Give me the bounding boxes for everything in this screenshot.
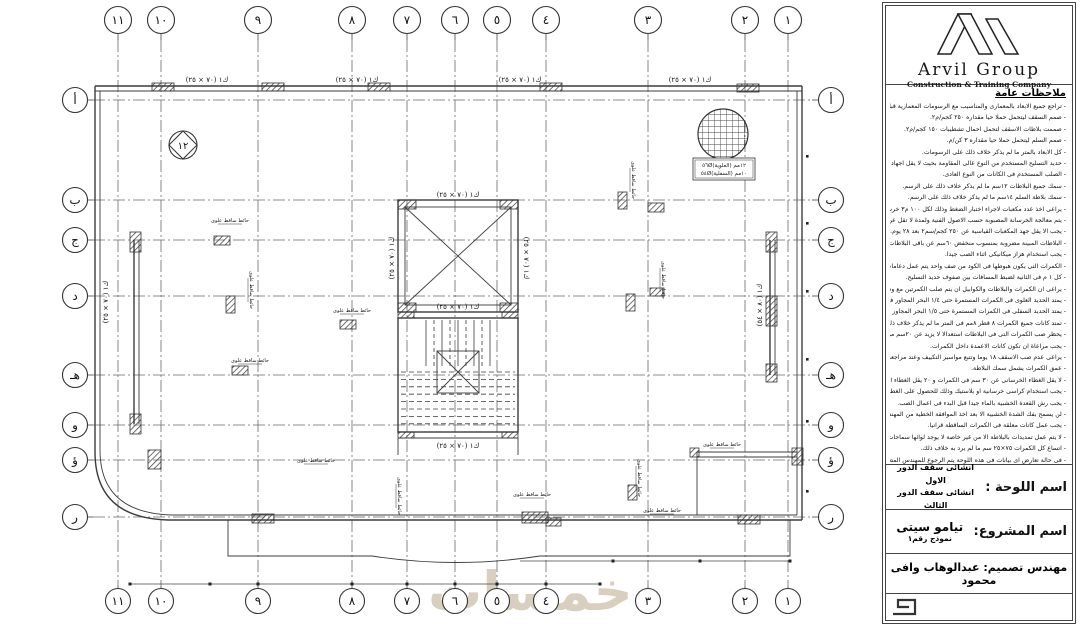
sheet-name-line2: انشائى سقف الدور الثالث	[886, 487, 985, 513]
arvil-logo-icon	[886, 6, 1073, 58]
note-line: - لا يتم عمل تمديدات بالبلاطة الا من غير…	[890, 432, 1066, 443]
grid-bubble-label: هـ	[69, 368, 80, 382]
annotation: حائط ساقط علوى	[630, 161, 636, 199]
project-name-label: اسم المشروع:	[974, 524, 1073, 539]
notes-list: - تراجع جميع الابعاد بالمعمارى والمناسيب…	[890, 101, 1066, 465]
column-hatch	[766, 364, 777, 382]
column-hatch	[502, 432, 518, 438]
beam-label: (٧٠ × ٢٥) ك١	[522, 237, 530, 280]
beam-label: (٧٠ × ٢٥) ك١	[669, 76, 712, 84]
grid-bubble-label: ٣	[645, 13, 652, 27]
grid-bubble-label: ر	[71, 510, 78, 525]
building-walls	[95, 86, 802, 563]
column-hatch	[398, 200, 416, 209]
grid-bubble-label: ب	[69, 193, 80, 207]
note-line: - يجب الا يقل جهد المكعبات القياسية عن ٢…	[890, 226, 1066, 237]
grid-bubble-label: د	[828, 289, 833, 303]
engineer-name: عبدالوهاب وافى محمود	[891, 561, 997, 587]
grid-bubble-label: ٤	[543, 13, 549, 27]
grid-bubble-label: ٥	[494, 13, 500, 27]
grid-bubble-label: ٦	[452, 594, 458, 608]
note-line: - كل ١ م فى الثانية لضبط المسافات بين صف…	[890, 272, 1066, 283]
annotation-label: حائط ساقط علوى	[513, 492, 551, 498]
grid-bubble-label: و	[71, 418, 78, 433]
beam-label: (٧٠ × ٢٥) ك١	[499, 76, 542, 84]
note-line: - الصلب المستخدم فى الكانات من النوع الع…	[890, 169, 1066, 180]
grid-bubble-label: ٧	[404, 594, 411, 608]
annotation-label: حائط ساقط علوى	[297, 458, 335, 464]
grid-bubble-label: ٤	[543, 594, 549, 608]
annotation-label: حائط ساقط علوى	[211, 218, 249, 224]
grid-bubble-label: ٧	[404, 13, 411, 27]
note-line: - لن يسمح بفك الشدة الخشبية الا بعد اخذ …	[890, 409, 1066, 420]
note-line: - صممت بلاطات الاسقف لتحمل احمال تشطيبات…	[890, 124, 1066, 135]
grid-bubble-label: ٩	[255, 13, 261, 27]
sheet-name-row: اسم اللوحة : انشائى سقف الدور الاول انشا…	[886, 465, 1072, 510]
grid-bubble-label: ١	[785, 13, 791, 27]
beam-label: (٧٠ × ٢٥) ك١	[388, 236, 396, 279]
company-logo-box: Arvil Group Construction & Training Comp…	[886, 6, 1072, 85]
project-name-row: اسم المشروع: تيامو سيتى نموذج رقم١	[886, 510, 1072, 554]
note-line: - حديد التسليح المستخدم من النوع عالى ال…	[890, 158, 1066, 169]
grid-bubble-label: ١١	[112, 594, 125, 608]
project-name: تيامو سيتى	[886, 520, 974, 534]
column-hatch	[130, 414, 141, 434]
engineer-label: مهندس تصميم:	[983, 561, 1067, 574]
column-hatch	[368, 83, 390, 91]
edge-tick	[806, 222, 809, 225]
sheet-name-line1: انشائى سقف الدور الاول	[886, 462, 985, 488]
dimension-tick	[599, 583, 602, 586]
column-hatch	[148, 450, 161, 469]
note-line: - البلاطات المبينة مضروبة بمنسوب منخفض ٦…	[890, 238, 1066, 249]
column-hatch	[262, 83, 284, 91]
column-hatch	[540, 83, 562, 91]
dimension-tick	[612, 560, 615, 563]
beam-label: (٧٠ × ٢٥) ك١	[186, 76, 229, 84]
wall-annotations: حائط ساقط علوىحائط ساقط علوىحائط ساقط عل…	[211, 161, 741, 515]
note-line: - يتم معالجة الخرسانة المصبوبة حسب الاصو…	[890, 215, 1066, 226]
note-line: - عمق الكمرات يشمل سمك البلاطة.	[890, 363, 1066, 374]
note-line: - يمتد الحديد السفلى فى الكمرات المستمرة…	[890, 306, 1066, 317]
note-line: - تراجع جميع الابعاد بالمعمارى والمناسيب…	[890, 101, 1066, 112]
grid-bubble-label: ٢	[742, 13, 748, 27]
note-line: - سمك بلاطة السلم ١٤سم ما لم يذكر خلاف ذ…	[890, 192, 1066, 203]
annotation: حائط ساقط علوى	[636, 459, 642, 497]
grid-bubble-label: ؤ	[827, 453, 834, 468]
note-line: - الكمرات التى يكون هبوطها فى الكود من ص…	[890, 261, 1066, 272]
annotation: حائط ساقط علوى	[231, 358, 269, 364]
beam-label: (٧٠ × ٢٥) ك١	[437, 442, 480, 450]
grid-bubble-label: ١٠	[155, 13, 168, 27]
column-hatch	[546, 518, 561, 526]
column-hatch	[690, 448, 699, 457]
dimension-tick	[545, 583, 548, 586]
column-hatch	[792, 448, 803, 465]
sheet-name-label: اسم اللوحة :	[985, 480, 1072, 495]
stamp-row	[886, 594, 1072, 620]
grid-bubble-label: ب	[825, 193, 836, 207]
edge-tick	[806, 155, 809, 158]
company-subtitle: Construction & Training Company	[886, 80, 1072, 89]
column-hatch	[522, 512, 548, 523]
grid-bubble-label: ٦	[452, 13, 458, 27]
dimension-tick	[351, 583, 354, 586]
annotation: حائط ساقط علوى	[513, 492, 551, 498]
edge-tick	[806, 358, 809, 361]
note-line: - يجب استخدام هزاز ميكانيكى اثناء الصب ج…	[890, 249, 1066, 260]
annotation: حائط ساقط علوى	[248, 271, 254, 309]
note-line: - صمم السقف ليتحمل حملا حيا مقداره ٢٥٠ ك…	[890, 112, 1066, 123]
general-notes: ملاحظات عامة - تراجع جميع الابعاد بالمعم…	[886, 85, 1072, 465]
grid-bubble-label: ج	[827, 233, 835, 247]
grid-bubble-label: ٥	[494, 594, 500, 608]
annotation-label: حائط ساقط علوى	[396, 477, 402, 515]
annotation: حائط ساقط علوى	[660, 261, 666, 299]
annotation-label: حائط ساقط علوى	[643, 508, 681, 514]
grid-bubble-label: ١٠	[155, 594, 168, 608]
annotation-label: حائط ساقط علوى	[333, 308, 371, 314]
project-model: نموذج رقم١	[886, 534, 974, 543]
note-line: - يجب رش القعدة الخشبية بالماء جيدا قبل …	[890, 398, 1066, 409]
column-hatch	[738, 515, 760, 524]
title-block-panel: Arvil Group Construction & Training Comp…	[882, 2, 1076, 624]
column-hatch	[500, 303, 518, 312]
grid-bubble-label: ج	[71, 233, 79, 247]
grid-bubble-label: ٢	[742, 594, 748, 608]
edge-tick	[806, 490, 809, 493]
annotation: حائط ساقط علوى	[333, 308, 371, 314]
dimension-tick	[454, 583, 457, 586]
edge-tick	[806, 290, 809, 293]
note-line: - صمم السلم ليتحمل حملا حيا مقداره ٣ كن/…	[890, 135, 1066, 146]
column-hatch	[502, 312, 518, 318]
note-line: - لا يقل الغطاء الخرسانى عن ٣٠ سم فى الك…	[890, 375, 1066, 386]
beam-label: (٧٠ × ٢٥) ك١	[437, 191, 480, 199]
annotation: حائط ساقط علوى	[396, 477, 402, 515]
grid-bubble-label: أ	[829, 92, 832, 107]
dimension-tick	[209, 583, 212, 586]
note-line: - اتساع كل الكمرات ٧٥×٢٥ سم ما لم يرد به…	[890, 443, 1066, 454]
grid-bubble-label: ؤ	[71, 453, 78, 468]
grid-bubble-label: ٨	[349, 13, 356, 27]
annotation-label: حائط ساقط علوى	[231, 358, 269, 364]
beam-label: (٧٠ × ٢٥) ك١	[102, 280, 110, 323]
section-marker-label: ١٢	[178, 141, 189, 152]
grid-bubble-label: و	[827, 418, 834, 433]
column-hatch	[766, 296, 777, 326]
annotation-label: حائط ساقط علوى	[703, 442, 741, 448]
note-line: - يراعى عدم صب الاسقف ١٨ يوما وتتبع مواس…	[890, 352, 1066, 363]
grid-bubble-label: أ	[73, 92, 76, 107]
grid-bubble-label: هـ	[825, 368, 836, 382]
note-line: - يراعى ان الكمرات والبلاطات والكوابيل ا…	[890, 284, 1066, 295]
note-line: - سمك جميع البلاطات ١٢سم ما لم يذكر خلاف…	[890, 181, 1066, 192]
rebar-note-bottom: ٥٤Ø١٠مم (السفلية)	[701, 170, 747, 177]
column-hatch	[214, 236, 230, 245]
drawing-sheet: خمسات	[0, 0, 1080, 624]
column-hatch	[618, 192, 627, 209]
beam-label: (٧٠ × ٢٥) ك١	[336, 76, 379, 84]
beam-label-side: (٨٠ × ٥٤) ك١	[756, 283, 764, 326]
note-line: - يراعى اخذ عدد مكعبات لاجراء اختبار الض…	[890, 204, 1066, 215]
notes-title: ملاحظات عامة	[890, 88, 1066, 99]
grid-bubble-label: د	[72, 289, 77, 303]
note-line: - يجب عمل كانات معلقة فى الكمرات الساقطة…	[890, 420, 1066, 431]
grid-bubble-label: ٨	[349, 594, 356, 608]
spiral-stamp-icon	[890, 597, 918, 617]
column-hatch	[152, 83, 174, 91]
column-hatch	[340, 320, 356, 329]
dimension-tick	[129, 583, 132, 586]
note-line: - يجب استخدام كراسى خرسانية او بلاستيك و…	[890, 386, 1066, 397]
annotation-label: حائط ساقط علوى	[660, 261, 666, 299]
column-hatch	[398, 312, 414, 318]
plan-markers: ١٢ ٥٦Ø١٢مم (العلوية) ٥٤Ø١٠مم (السفلية)	[169, 109, 755, 180]
column-hatch	[226, 296, 235, 313]
grid-bubble-label: ١	[785, 594, 791, 608]
dimension-tick	[496, 583, 499, 586]
engineer-row: مهندس تصميم: عبدالوهاب وافى محمود	[886, 554, 1072, 594]
stair-elevator-core	[398, 200, 518, 455]
grid-bubble-label: ١١	[112, 13, 125, 27]
column-hatch	[500, 200, 518, 209]
note-line: - يحظر صب الكمرات التى فى البلاطات استعد…	[890, 329, 1066, 340]
column-hatch	[737, 84, 759, 92]
annotation: حائط ساقط علوى	[703, 442, 741, 448]
note-line: - تمتد كانات جميع الكمرات ٨ قطر ٨مم فى ا…	[890, 318, 1066, 329]
note-line: - يمتد الحديد العلوى فى الكمرات المستمرة…	[890, 295, 1066, 306]
beam-label: (٧٠ × ٢٥) ك١	[437, 303, 480, 311]
column-hatch	[766, 232, 777, 252]
annotation-label: حائط ساقط علوى	[636, 459, 642, 497]
column-hatch	[252, 514, 274, 523]
column-hatch	[626, 294, 635, 311]
annotation: حائط ساقط علوى	[297, 458, 335, 464]
rebar-note-top: ٥٦Ø١٢مم (العلوية)	[702, 162, 746, 169]
floor-plan-drawing: ١٢ ٥٦Ø١٢مم (العلوية) ٥٤Ø١٠مم (السفلية) (…	[0, 0, 880, 624]
column-hatch	[398, 432, 414, 438]
column-hatch	[232, 366, 248, 375]
dimension-tick	[406, 583, 409, 586]
annotation-label: حائط ساقط علوى	[630, 161, 636, 199]
annotation-label: حائط ساقط علوى	[248, 271, 254, 309]
note-line: - كل الابعاد بالمتر ما لم يذكر خلاف ذلك …	[890, 147, 1066, 158]
company-name: Arvil Group	[886, 60, 1072, 80]
opening-hatched-circle	[698, 109, 748, 159]
title-block-inner: Arvil Group Construction & Training Comp…	[885, 5, 1073, 621]
grid-bubble-label: ر	[827, 510, 834, 525]
dimension-tick	[699, 560, 702, 563]
grid-bubble-label: ٣	[645, 594, 652, 608]
dimension-tick	[789, 560, 792, 563]
column-hatch	[628, 485, 637, 500]
dimension-tick	[257, 583, 260, 586]
column-hatch	[398, 303, 416, 312]
note-line: - يجب مراعاة ان تكون كانات الاعمدة داخل …	[890, 341, 1066, 352]
annotation: حائط ساقط علوى	[211, 218, 249, 224]
column-hatch	[130, 232, 141, 252]
annotation: حائط ساقط علوى	[643, 508, 681, 514]
grid-bubble-label: ٩	[255, 594, 261, 608]
edge-tick	[806, 420, 809, 423]
column-hatch	[648, 203, 664, 212]
